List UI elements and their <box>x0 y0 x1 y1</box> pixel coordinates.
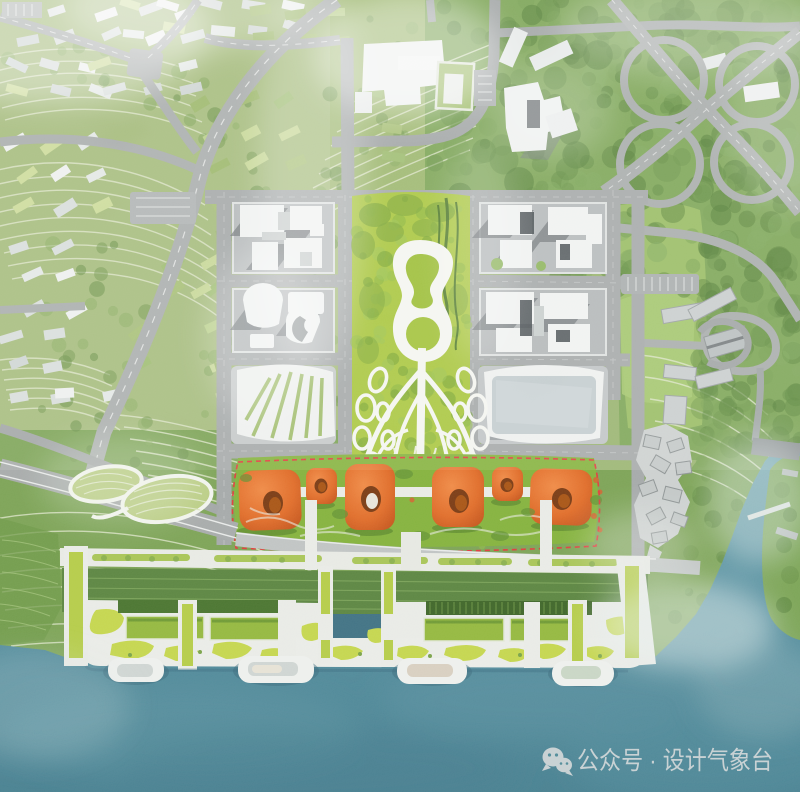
svg-text:公众号 · 设计气象台: 公众号 · 设计气象台 <box>577 747 773 775</box>
